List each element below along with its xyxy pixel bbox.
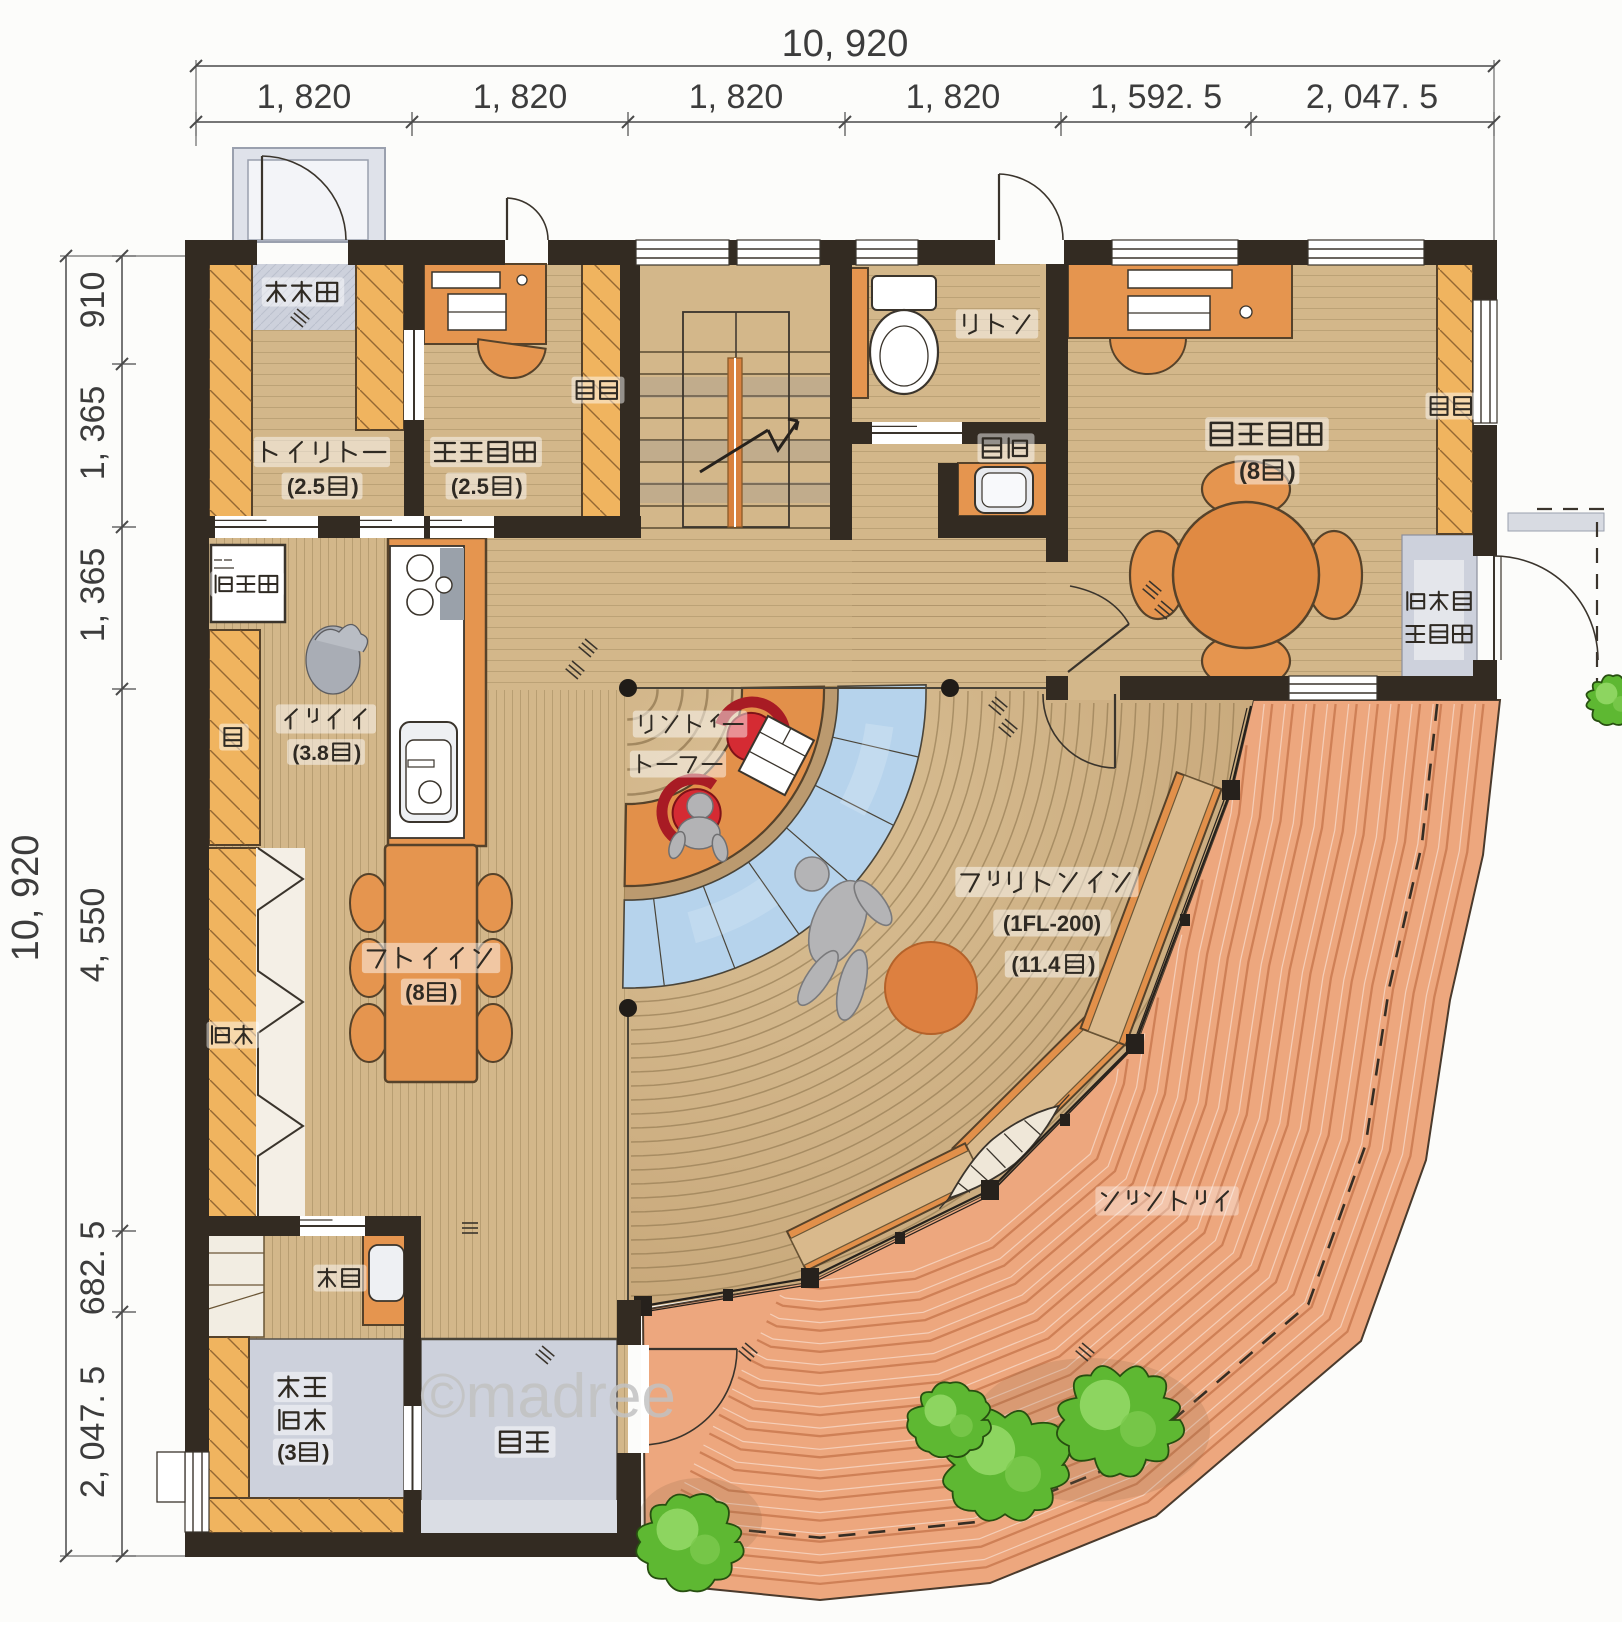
svg-text:): ) [351, 474, 358, 499]
svg-text:): ) [515, 474, 522, 499]
svg-text:): ) [354, 742, 361, 765]
svg-text:682. 5: 682. 5 [74, 1221, 112, 1316]
svg-text:1, 820: 1, 820 [689, 78, 784, 116]
svg-text:(2.5: (2.5 [287, 474, 325, 499]
svg-text:(3: (3 [277, 1440, 297, 1465]
svg-text:(3.8: (3.8 [292, 742, 329, 765]
svg-text:(8: (8 [405, 980, 425, 1005]
svg-text:910: 910 [74, 272, 112, 329]
svg-text:): ) [1288, 458, 1296, 485]
svg-text:): ) [1088, 952, 1095, 977]
svg-text:©madree: ©madree [420, 1362, 676, 1431]
svg-text:): ) [322, 1440, 329, 1465]
svg-text:): ) [450, 980, 457, 1005]
svg-text:1, 820: 1, 820 [473, 78, 568, 116]
svg-text:(11.4: (11.4 [1011, 952, 1061, 977]
svg-text:2, 047. 5: 2, 047. 5 [1306, 78, 1438, 116]
svg-text:1, 820: 1, 820 [906, 78, 1001, 116]
svg-text:2, 047. 5: 2, 047. 5 [74, 1366, 112, 1498]
svg-text:10, 920: 10, 920 [5, 835, 47, 962]
svg-text:1, 820: 1, 820 [257, 78, 352, 116]
svg-text:(8: (8 [1239, 458, 1260, 485]
svg-text:1, 592. 5: 1, 592. 5 [1090, 78, 1222, 116]
svg-text:1, 365: 1, 365 [74, 386, 112, 481]
svg-text:4, 550: 4, 550 [74, 888, 112, 983]
svg-text:(2.5: (2.5 [451, 474, 489, 499]
svg-text:10, 920: 10, 920 [782, 23, 909, 65]
svg-text:(1FL-200): (1FL-200) [1003, 911, 1101, 936]
svg-text:1, 365: 1, 365 [74, 548, 112, 643]
